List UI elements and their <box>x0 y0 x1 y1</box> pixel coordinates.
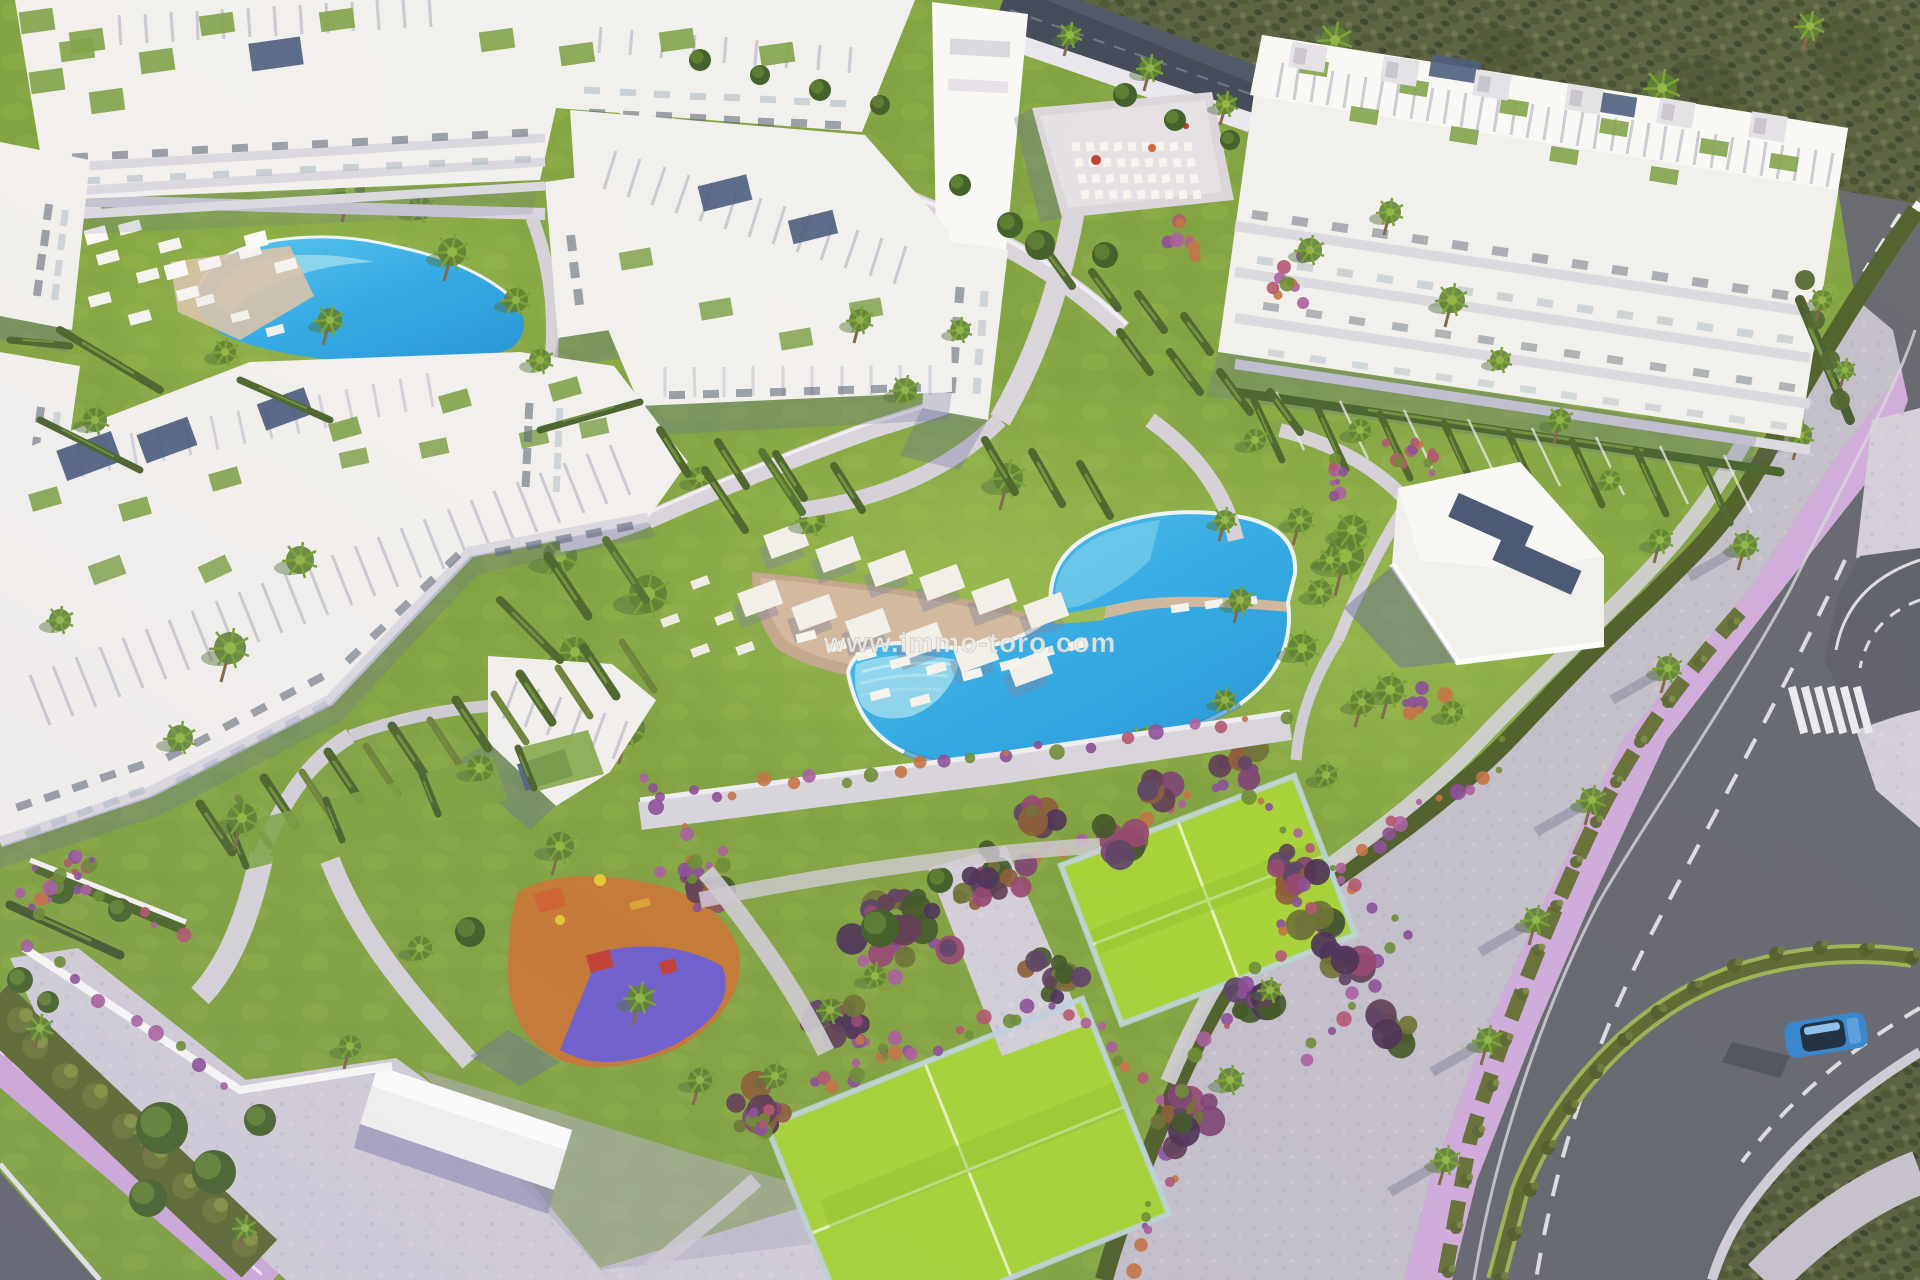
svg-text:www.immo-toro.com: www.immo-toro.com <box>823 627 1117 658</box>
